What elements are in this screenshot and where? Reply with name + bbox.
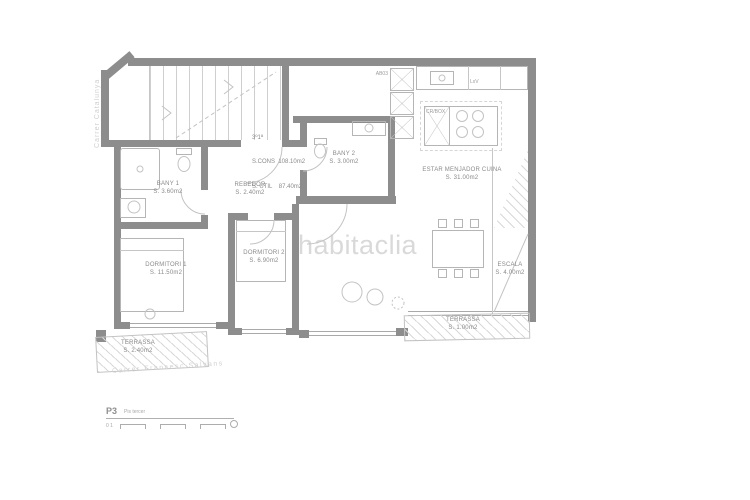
legend-plan-code: P3 <box>106 406 117 416</box>
room-name: ESTAR MENJADOR CUINA <box>406 167 518 175</box>
scale-segment <box>160 424 186 429</box>
kitchen-tall-unit-1 <box>390 68 414 91</box>
label-island-code: CR/BOX <box>426 110 445 115</box>
room-label-terrassa-left: TERRASSA S. 2.40m2 <box>104 340 172 356</box>
room-label-dormitori2: DORMITORI 2 S. 6.90m2 <box>233 250 295 266</box>
dining-chair <box>470 219 479 228</box>
window-living-left <box>309 331 396 336</box>
wall-bottom-chunk-4 <box>286 328 299 335</box>
unit-floor: 3º1ª <box>252 134 305 142</box>
room-label-estar: ESTAR MENJADOR CUINA S. 31.00m2 <box>406 167 518 183</box>
street-name-left: Carrer Catalunya <box>94 56 101 148</box>
stair-left-line <box>149 66 150 140</box>
room-name: DORMITORI 1 <box>128 262 204 270</box>
dining-chair <box>454 219 463 228</box>
room-area: S. 3.00m2 <box>314 159 374 167</box>
kitchen-counter-divider-1 <box>468 66 469 90</box>
wall-dormitori2-left <box>228 213 235 335</box>
wall-bottom-chunk-3 <box>228 328 242 335</box>
wall-dormitori2-right <box>292 204 299 335</box>
label-washer-code: LxV <box>470 80 479 85</box>
north-compass-icon <box>230 420 238 428</box>
kitchen-tall-unit-3 <box>390 116 414 139</box>
kitchen-tall-unit-2 <box>390 92 414 115</box>
room-name: REBEDOR <box>222 182 278 190</box>
room-area: S. 6.90m2 <box>233 258 295 266</box>
room-name: BANY 1 <box>140 181 196 189</box>
kitchen-counter-divider-2 <box>500 66 501 90</box>
dining-chair <box>470 269 479 278</box>
scale-segment <box>120 424 146 429</box>
room-label-rebedor: REBEDOR S. 2.40m2 <box>222 182 278 198</box>
room-area: S. 3.60m2 <box>140 189 196 197</box>
watermark-logo: habitaclia <box>298 230 417 261</box>
room-area: S. 2.40m2 <box>222 190 278 198</box>
wall-left-upper <box>101 70 109 147</box>
toilet-tank-bany2 <box>314 138 327 145</box>
room-label-terrassa-right: TERRASSA S. 1.00m2 <box>430 317 496 333</box>
wall-bottom-chunk-5 <box>299 330 309 338</box>
room-label-escala: ESCALA S. 4.00m2 <box>490 262 530 278</box>
label-tall-unit-code: AB03 <box>366 72 388 77</box>
scale-segment <box>200 424 226 429</box>
toilet-tank-bany1 <box>176 148 192 155</box>
kitchen-sink <box>430 71 454 85</box>
room-name: TERRASSA <box>104 340 172 348</box>
room-name: TERRASSA <box>430 317 496 325</box>
room-label-bany1: BANY 1 S. 3.60m2 <box>140 181 196 197</box>
escala-hatch <box>494 150 528 228</box>
room-name: ESCALA <box>490 262 530 270</box>
window-dormitori2 <box>242 329 286 334</box>
wall-bany1-right-a <box>201 147 208 190</box>
floor-plan: 3º1ª S.CONS 108.10m2 S. ÚTIL 87.40m2 BAN… <box>0 0 750 500</box>
legend-scale-ticks: 0 1 <box>106 423 113 429</box>
window-dormitori1 <box>130 323 216 328</box>
dining-chair <box>438 219 447 228</box>
room-area: S. 4.00m2 <box>490 270 530 278</box>
room-area: S. 2.40m2 <box>104 348 172 356</box>
wall-bottom-chunk-1 <box>114 322 130 329</box>
wall-dormitori1-top <box>114 222 208 229</box>
legend-plan-label: Pis tercer <box>124 409 145 415</box>
wall-entrance <box>201 140 241 147</box>
sink-counter-bany1 <box>120 198 146 218</box>
dining-table <box>432 230 484 268</box>
room-name: BANY 2 <box>314 151 374 159</box>
wall-bany1-top <box>101 140 208 147</box>
bany1-toilet <box>178 157 190 172</box>
room-name: DORMITORI 2 <box>233 250 295 258</box>
legend-rule <box>106 418 234 419</box>
room-area: S. 11.50m2 <box>128 270 204 278</box>
wall-top <box>128 58 536 66</box>
bed-dormitori1-pillow-line <box>120 250 184 251</box>
pouf-circle <box>367 289 383 305</box>
bed-dormitori2-pillow-line <box>236 231 286 232</box>
room-area: S. 31.00m2 <box>406 175 518 183</box>
unit-built-area: S.CONS 108.10m2 <box>252 158 305 166</box>
sink-counter-bany2 <box>352 121 386 136</box>
wall-dormitori2-top-a <box>228 213 248 220</box>
room-label-dormitori1: DORMITORI 1 S. 11.50m2 <box>128 262 204 278</box>
wall-bany2-bottom <box>296 196 396 204</box>
room-area: S. 1.00m2 <box>430 325 496 333</box>
plant-circle <box>392 297 404 309</box>
pouf-circle <box>342 282 362 302</box>
room-label-bany2: BANY 2 S. 3.00m2 <box>314 151 374 167</box>
dining-chair <box>438 269 447 278</box>
dining-chair <box>454 269 463 278</box>
